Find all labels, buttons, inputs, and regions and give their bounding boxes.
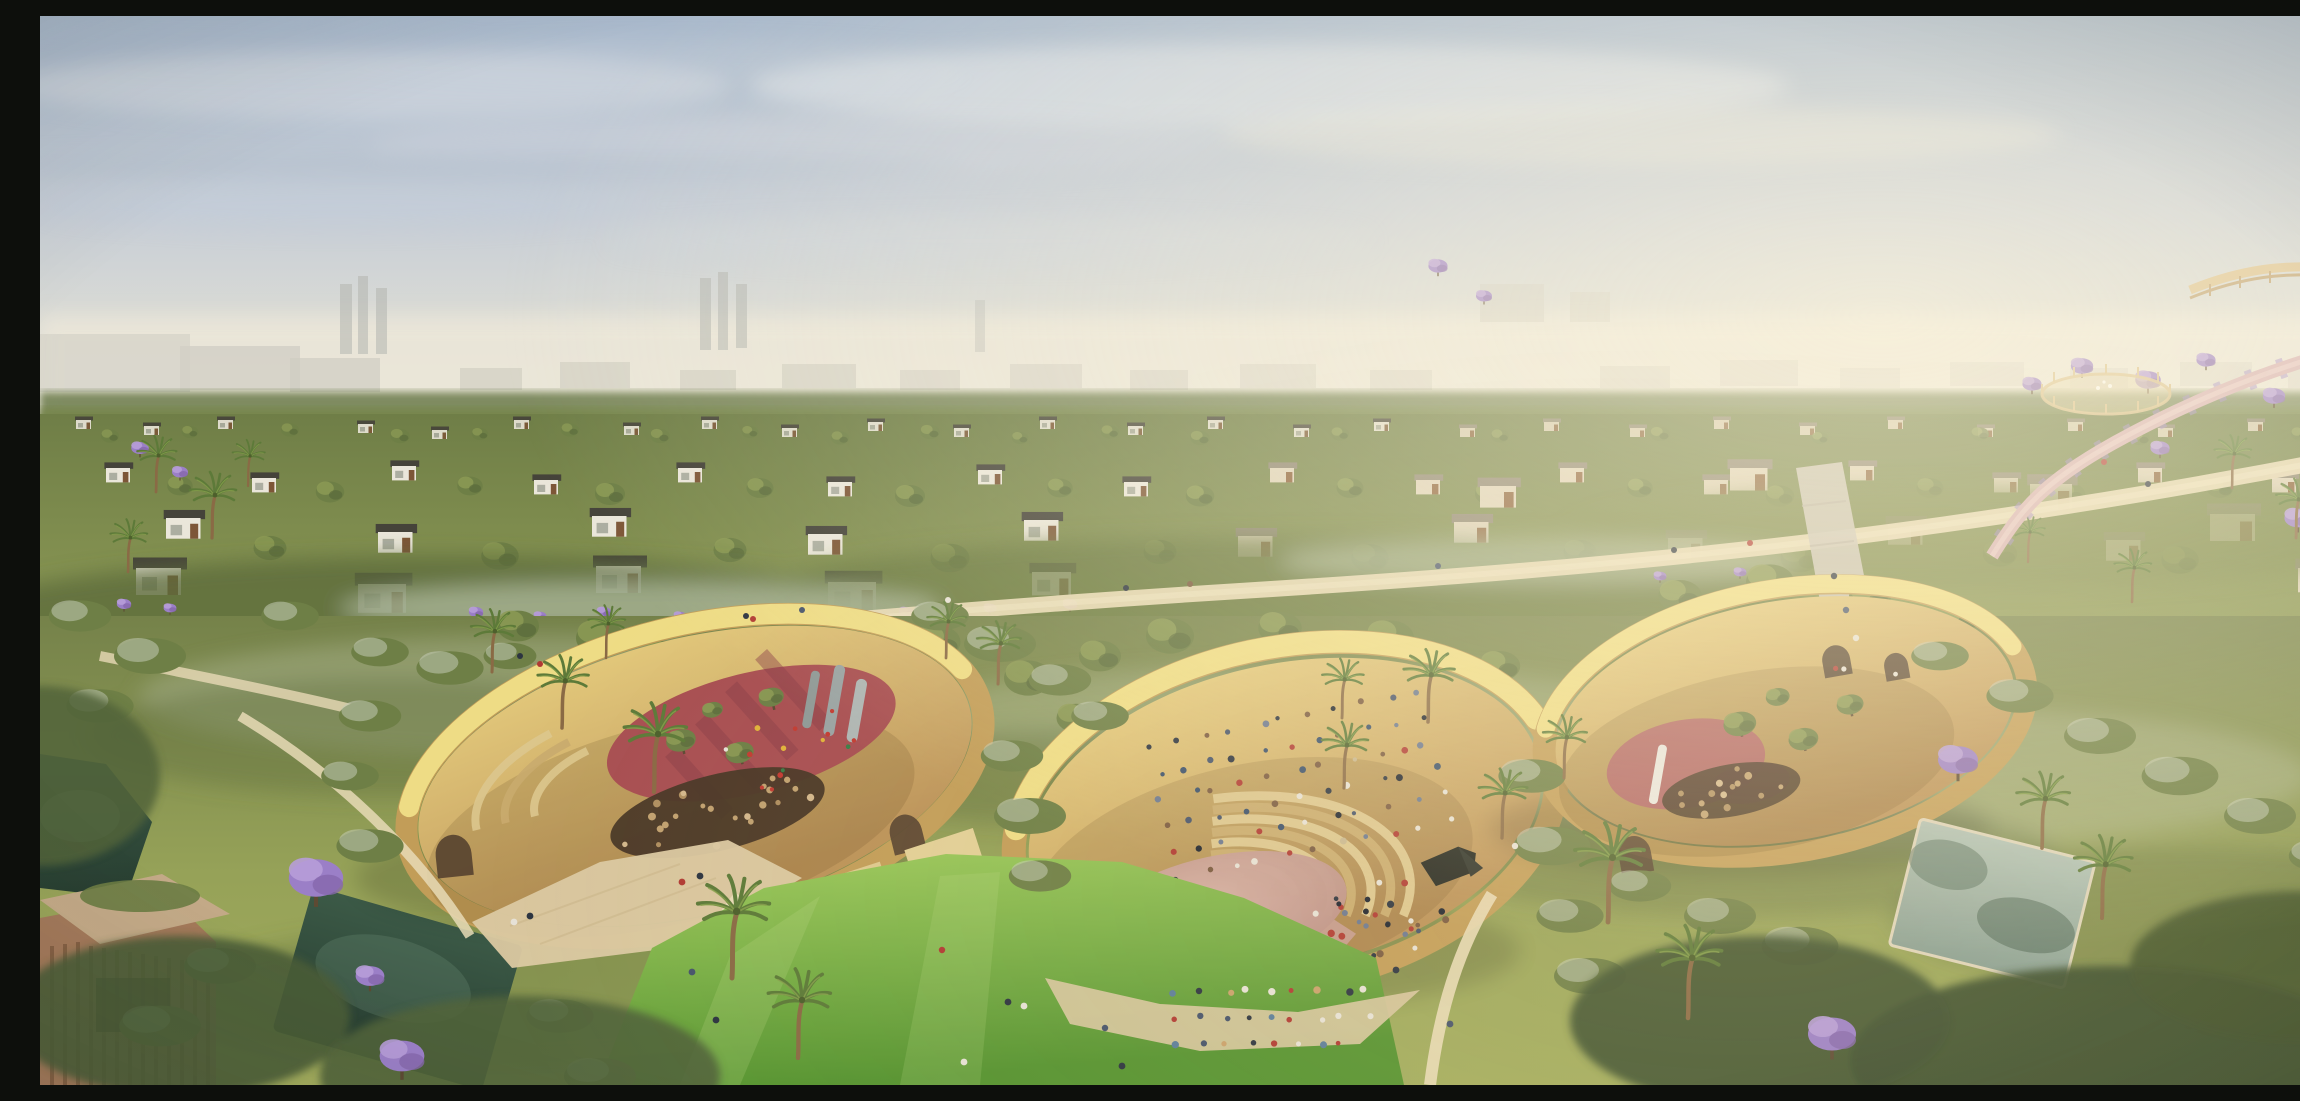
- light-overlays: [40, 16, 2300, 1085]
- architectural-render: [40, 16, 2300, 1085]
